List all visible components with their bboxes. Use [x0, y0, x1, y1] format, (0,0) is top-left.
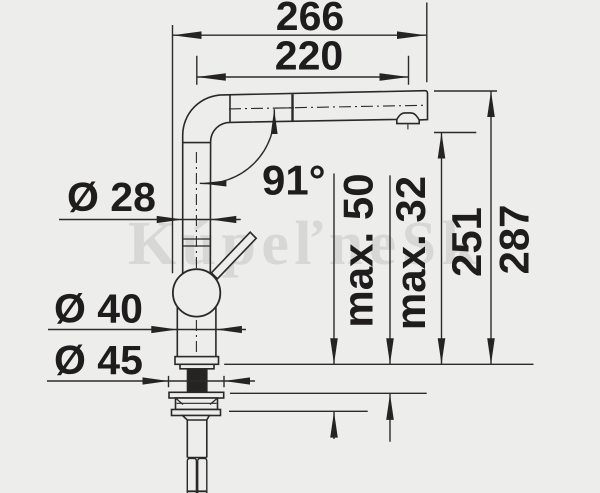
- svg-text:251: 251: [443, 207, 490, 277]
- svg-text:max. 32: max. 32: [387, 176, 434, 330]
- svg-text:Ø 40: Ø 40: [54, 286, 143, 332]
- svg-text:Ø 28: Ø 28: [67, 174, 156, 220]
- svg-text:287: 287: [491, 204, 538, 274]
- svg-text:Ø 45: Ø 45: [54, 337, 143, 383]
- svg-text:220: 220: [275, 33, 343, 79]
- svg-text:max. 50: max. 50: [335, 173, 382, 327]
- svg-text:91°: 91°: [262, 157, 326, 204]
